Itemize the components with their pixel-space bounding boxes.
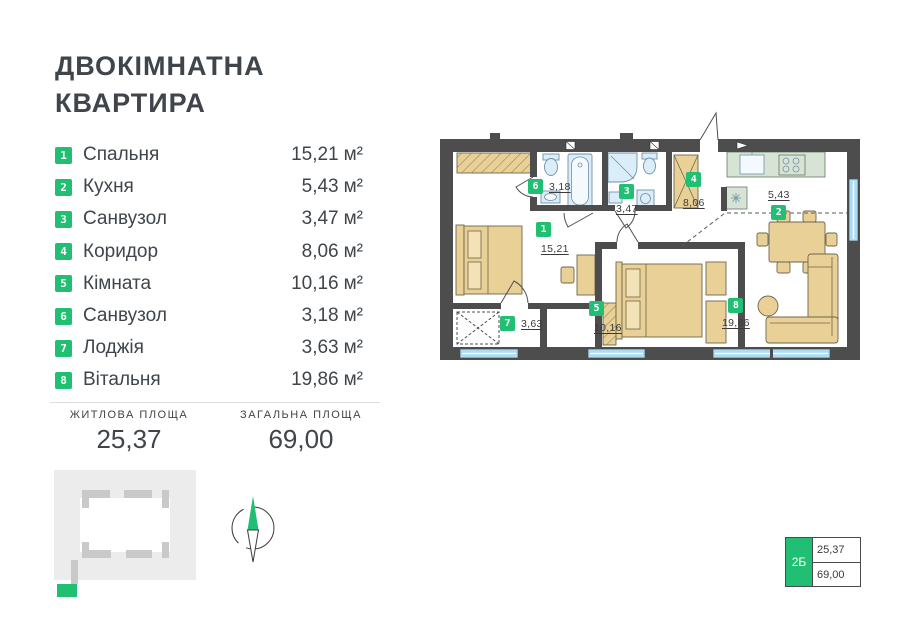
- room-name: Вітальня: [83, 369, 291, 391]
- room-area: 10,16м²: [291, 273, 363, 295]
- compass-needle-north: [248, 496, 259, 530]
- unit-tag: 2Б 25,37 69,00: [785, 537, 861, 587]
- plan-room-number: 4: [686, 172, 701, 187]
- loggia-storage-box: [457, 312, 499, 344]
- plan-room-number: 5: [589, 301, 604, 316]
- room-number-badge: 2: [55, 179, 72, 196]
- room-list-item: 1 Спальня 15,21м²: [55, 139, 363, 171]
- plan-label-4: 4 8,06: [683, 172, 705, 209]
- apartment-brochure-page: ДВОКІМНАТНА КВАРТИРА 1 Спальня 15,21м² 2…: [0, 0, 900, 637]
- site-plan: [52, 468, 202, 605]
- room-area: 5,43м²: [302, 176, 363, 198]
- plan-room-area: 10,16: [594, 322, 622, 334]
- room-number-badge: 8: [55, 372, 72, 389]
- area-summary: ЖИТЛОВА ПЛОЩА 25,37 ЗАГАЛЬНА ПЛОЩА 69,00: [50, 409, 380, 455]
- plan-label-2: 5,43 2: [768, 189, 790, 220]
- room-number-badge: 4: [55, 243, 72, 260]
- room-name: Кухня: [83, 176, 302, 198]
- room-list-item: 8 Вітальня 19,86м²: [55, 364, 363, 396]
- room-area: 3,18м²: [302, 305, 363, 327]
- wardrobe-bedroom1: [457, 153, 533, 173]
- room-list-item: 5 Кімната 10,16м²: [55, 268, 363, 300]
- room-area: 8,06м²: [302, 241, 363, 263]
- plan-room-area: 19,86: [722, 317, 750, 329]
- plan-room-area: 8,06: [683, 197, 705, 209]
- room-name: Санвузол: [83, 208, 302, 230]
- building-outline: [52, 468, 202, 600]
- plan-label-8: 8 19,86: [722, 298, 750, 329]
- apartment-location-marker: [57, 584, 77, 597]
- room-list-item: 3 Санвузол 3,47м²: [55, 203, 363, 235]
- floor-plan: 1 15,21 6 3,18 3 3,47 4 8,06 5,43 2 5 10…: [440, 105, 860, 363]
- plan-label-7: 7 3,63: [500, 316, 543, 331]
- unit-tag-living-area: 25,37: [813, 538, 860, 562]
- room-name: Санвузол: [83, 305, 302, 327]
- room-area: 19,86м²: [291, 369, 363, 391]
- page-title-line2: КВАРТИРА: [55, 85, 265, 122]
- plan-room-number: 8: [728, 298, 743, 313]
- total-area-label: ЗАГАЛЬНА ПЛОЩА: [222, 409, 380, 421]
- plan-room-area: 5,43: [768, 189, 790, 201]
- plan-room-number: 3: [619, 184, 634, 199]
- plan-room-area: 3,63: [521, 318, 543, 330]
- plan-label-6: 6 3,18: [528, 179, 571, 194]
- room-list-item: 7 Лоджія 3,63м²: [55, 332, 363, 364]
- plan-room-number: 6: [528, 179, 543, 194]
- page-title-line1: ДВОКІМНАТНА: [55, 48, 265, 85]
- total-area-value: 69,00: [222, 424, 380, 455]
- room-number-badge: 3: [55, 211, 72, 228]
- room-list-item: 6 Санвузол 3,18м²: [55, 300, 363, 332]
- unit-tag-values: 25,37 69,00: [812, 537, 861, 587]
- unit-tag-label: 2Б: [785, 537, 812, 587]
- total-area-block: ЗАГАЛЬНА ПЛОЩА 69,00: [222, 409, 380, 455]
- plan-room-number: 1: [536, 222, 551, 237]
- room-name: Коридор: [83, 241, 302, 263]
- room-number-badge: 5: [55, 275, 72, 292]
- room-name: Спальня: [83, 144, 291, 166]
- room-list: 1 Спальня 15,21м² 2 Кухня 5,43м² 3 Санву…: [55, 139, 363, 397]
- compass: [227, 490, 279, 571]
- room-area: 3,47м²: [302, 208, 363, 230]
- room-number-badge: 6: [55, 308, 72, 325]
- unit-tag-total-area: 69,00: [813, 562, 860, 586]
- compass-icon: [227, 490, 279, 566]
- page-title: ДВОКІМНАТНА КВАРТИРА: [55, 48, 265, 122]
- divider-line: [50, 402, 380, 403]
- living-area-block: ЖИТЛОВА ПЛОЩА 25,37: [50, 409, 208, 455]
- room-list-item: 4 Коридор 8,06м²: [55, 236, 363, 268]
- plan-room-area: 3,47: [616, 203, 638, 215]
- room-area: 15,21м²: [291, 144, 363, 166]
- living-area-value: 25,37: [50, 424, 208, 455]
- desk-and-chair: [561, 255, 595, 295]
- room-name: Кімната: [83, 273, 291, 295]
- plan-room-area: 15,21: [541, 243, 569, 255]
- room-list-item: 2 Кухня 5,43м²: [55, 171, 363, 203]
- room-area: 3,63м²: [302, 337, 363, 359]
- plan-room-number: 7: [500, 316, 515, 331]
- compass-needle-south: [248, 530, 259, 562]
- pouf: [758, 296, 778, 316]
- plan-room-area: 3,18: [549, 181, 571, 193]
- bed-room5: [616, 262, 702, 339]
- kitchen-appliance: [726, 187, 747, 209]
- room-number-badge: 7: [55, 340, 72, 357]
- living-area-label: ЖИТЛОВА ПЛОЩА: [50, 409, 208, 421]
- room-name: Лоджія: [83, 337, 302, 359]
- plan-label-5: 5 10,16: [589, 301, 622, 334]
- room-number-badge: 1: [55, 147, 72, 164]
- plan-room-number: 2: [771, 205, 786, 220]
- plan-label-1: 1 15,21: [536, 222, 569, 255]
- plan-label-3: 3 3,47: [616, 184, 638, 215]
